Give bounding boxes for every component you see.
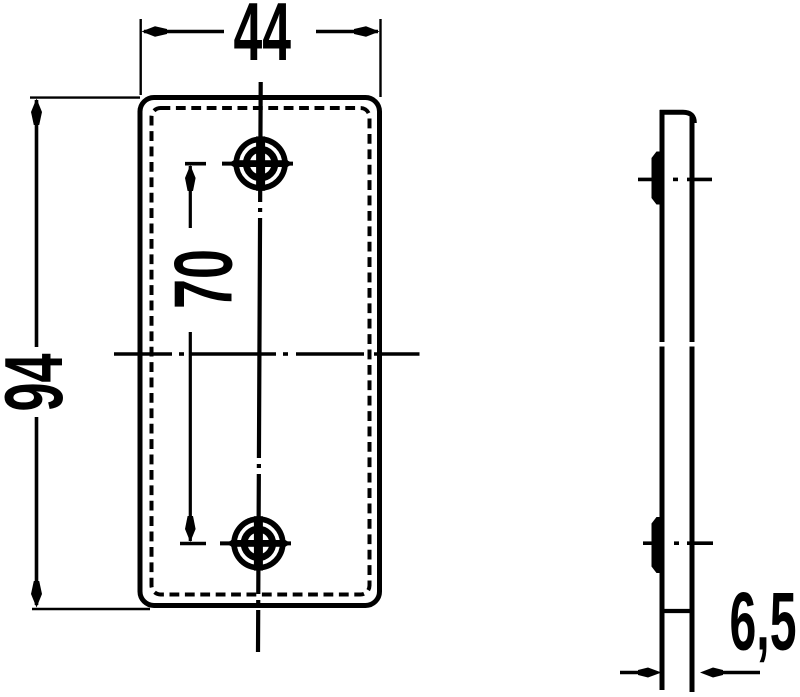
svg-text:94: 94: [0, 354, 80, 412]
svg-text:6,5: 6,5: [730, 574, 797, 667]
svg-text:70: 70: [157, 249, 250, 309]
svg-text:44: 44: [234, 0, 292, 78]
